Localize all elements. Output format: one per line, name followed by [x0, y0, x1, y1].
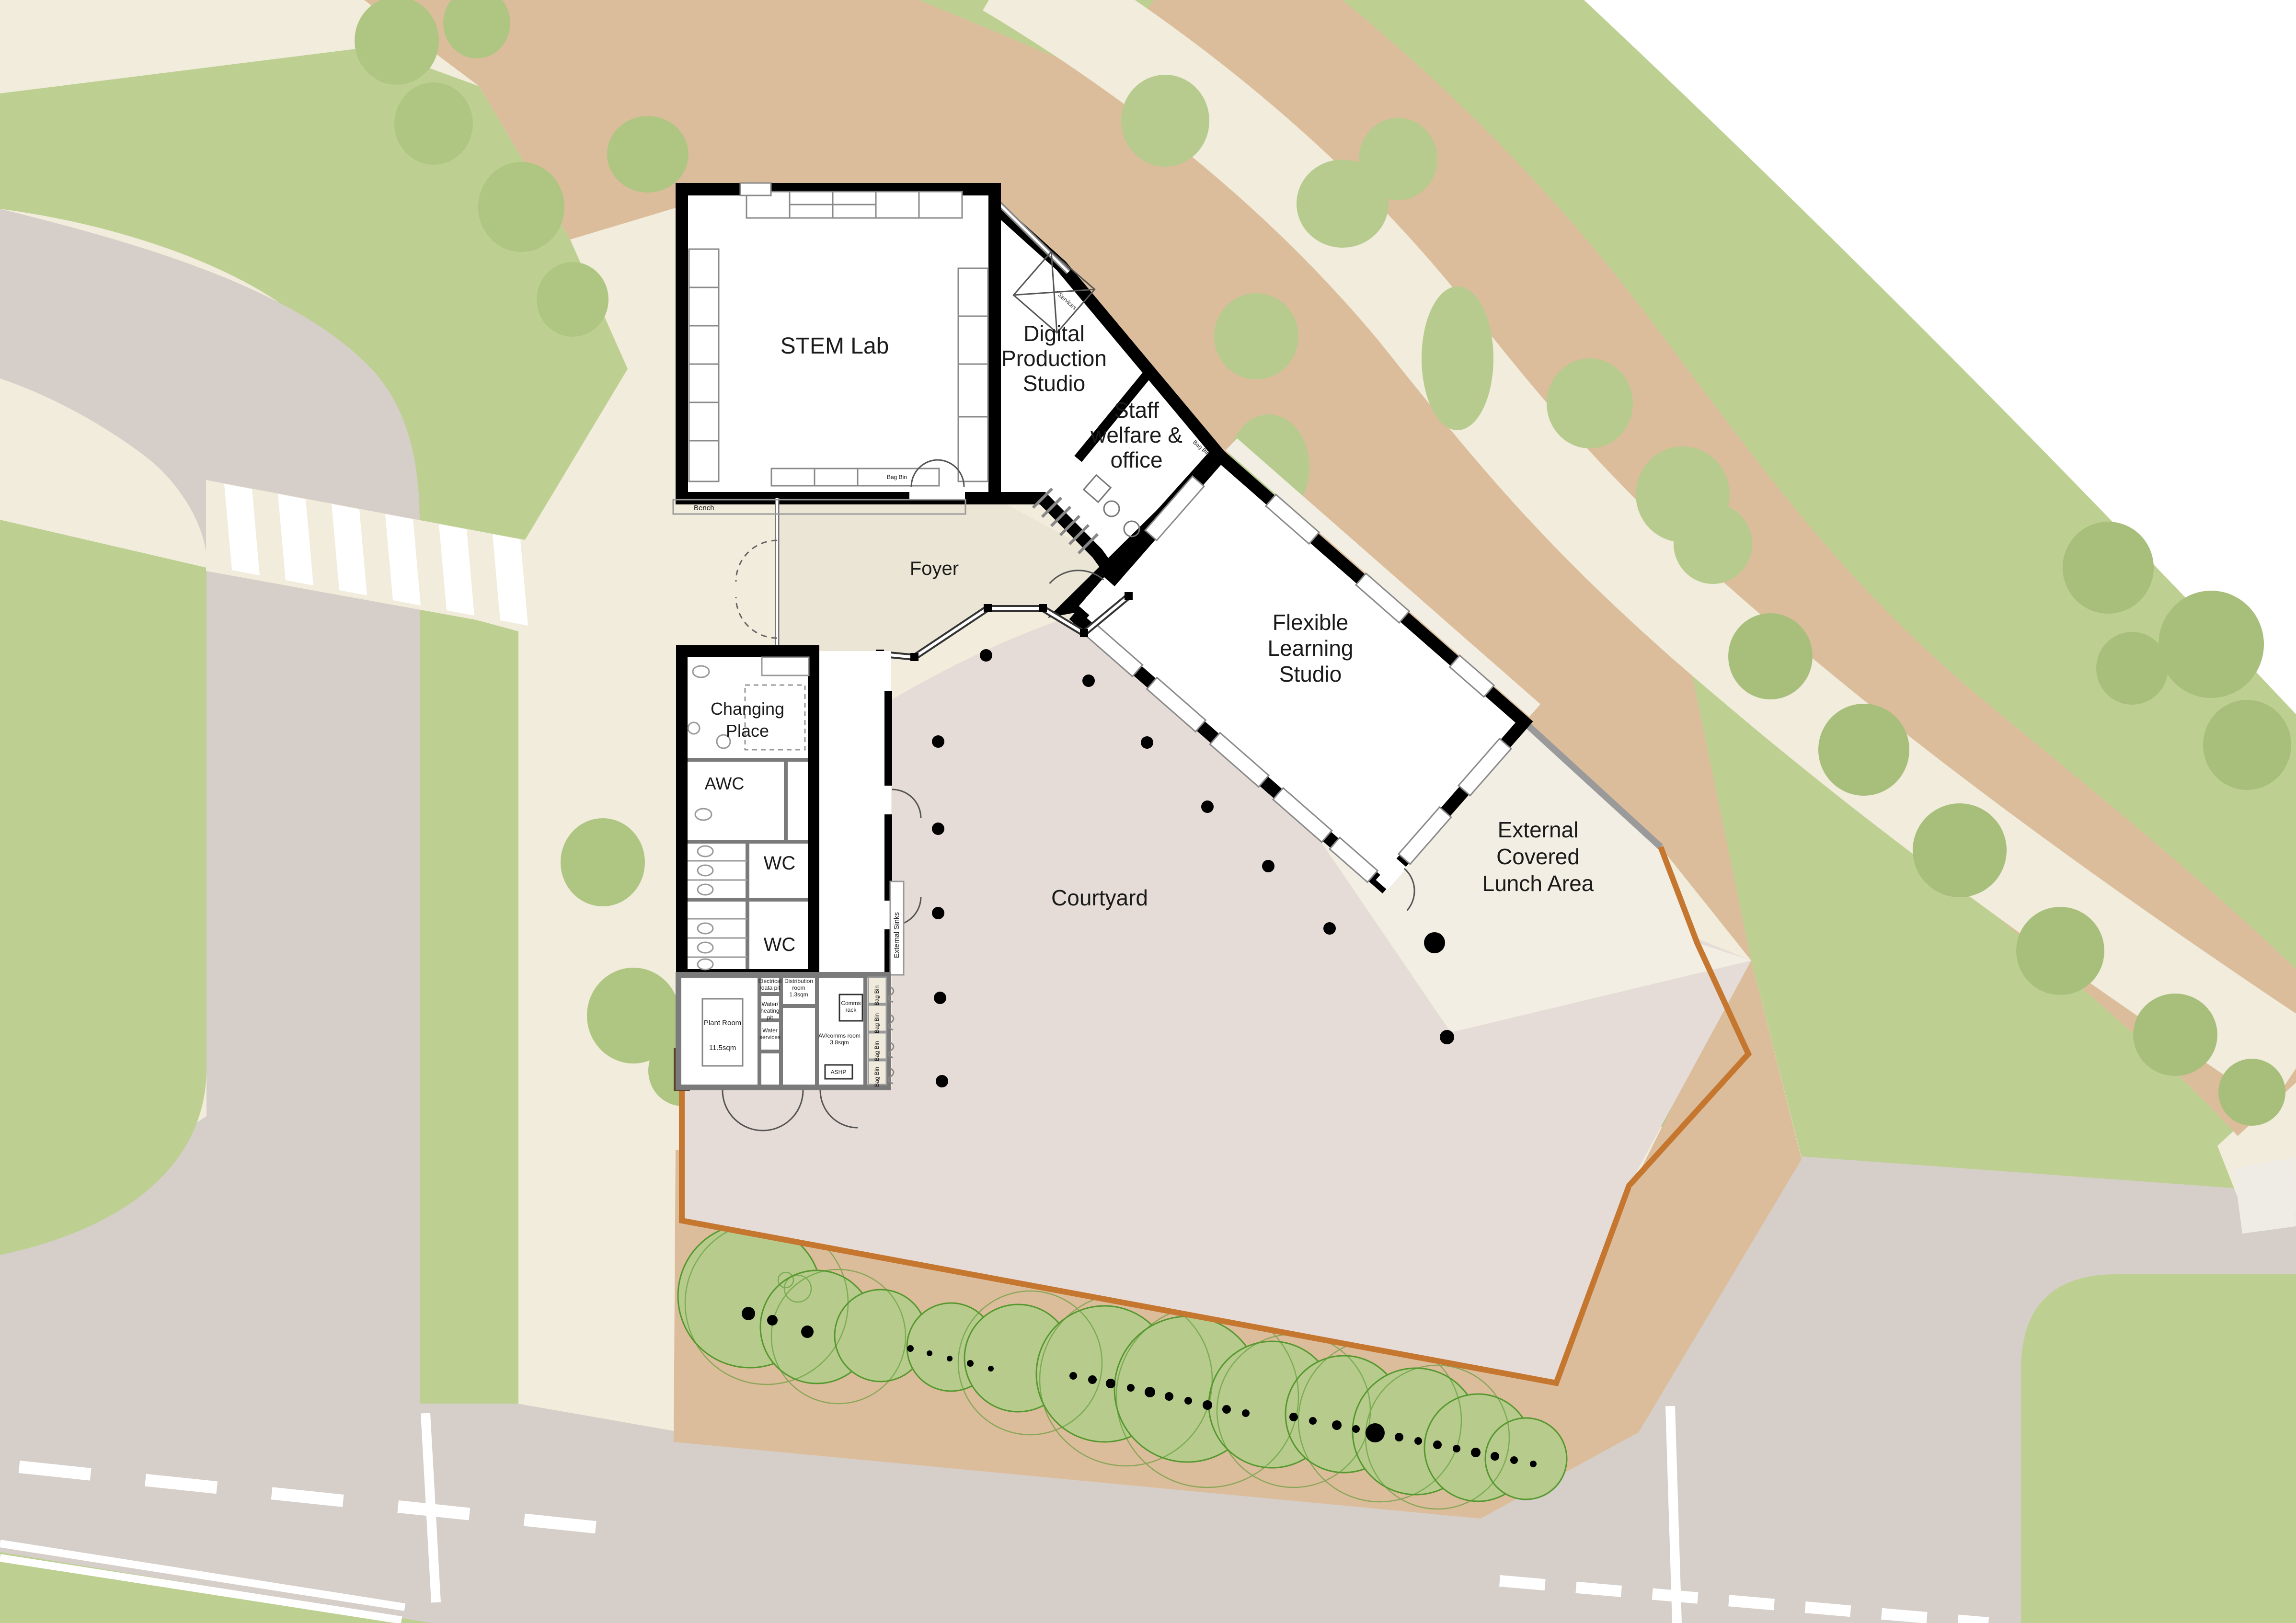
label-water-services: Waterservices	[759, 1027, 781, 1040]
giveway-line-right	[1670, 1406, 1677, 1623]
label-bag-bin-stem: Bag Bin	[887, 474, 907, 480]
label-foyer: Foyer	[910, 558, 959, 579]
site-plan-page: STEM Lab DigitalProductionStudio Staffwe…	[0, 0, 2296, 1623]
neighbour-building	[2234, 1157, 2296, 1234]
grass-island-left	[0, 520, 207, 1255]
label-wc-upper: WC	[764, 853, 796, 874]
label-courtyard: Courtyard	[1051, 885, 1148, 910]
label-plant-room: Plant Room	[704, 1019, 741, 1027]
site-plan-drawing: STEM Lab DigitalProductionStudio Staffwe…	[0, 0, 2296, 1623]
corridor	[814, 651, 891, 975]
label-bag-bin-1: Bag Bin	[873, 985, 880, 1006]
grass-verge-upper	[420, 605, 518, 1404]
grass-island-right	[2021, 1274, 2296, 1623]
label-bag-bin-3: Bag Bin	[873, 1041, 880, 1061]
label-stem-lab: STEM Lab	[781, 333, 889, 359]
label-external-sinks: External Sinks	[893, 912, 901, 958]
label-electrical-pit: Electrical/data pit	[758, 978, 782, 991]
label-ashp: ASHP	[831, 1069, 847, 1075]
label-plant-room-area: 11.5sqm	[709, 1044, 736, 1052]
label-wc-lower: WC	[764, 934, 796, 955]
label-flexible: FlexibleLearningStudio	[1267, 610, 1353, 686]
label-bag-bin-2: Bag Bin	[873, 1013, 880, 1033]
label-bag-bin-4: Bag Bin	[873, 1067, 880, 1087]
label-bench: Bench	[694, 504, 714, 512]
label-awc: AWC	[705, 774, 745, 793]
label-lunch-area: ExternalCoveredLunch Area	[1482, 817, 1594, 896]
